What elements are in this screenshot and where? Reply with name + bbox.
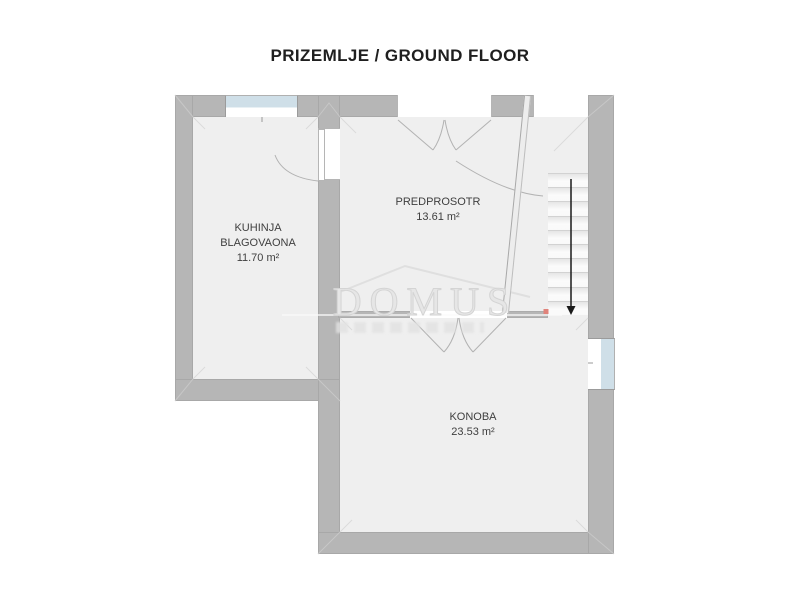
page-title: PRIZEMLJE / GROUND FLOOR: [0, 46, 800, 66]
stair-step: [548, 258, 588, 272]
door-leaf-kitchen: [318, 129, 325, 181]
room-label-konoba: KONOBA 23.53 m²: [408, 410, 538, 440]
watermark: DOMUS: [330, 278, 520, 325]
room-name: BLAGOVAONA: [193, 236, 323, 251]
stair-step: [548, 287, 588, 301]
stair-step: [548, 301, 588, 315]
room-label-kitchen: KUHINJA BLAGOVAONA 11.70 m²: [193, 221, 323, 266]
room-name: KUHINJA: [193, 221, 323, 236]
room-area: 11.70 m²: [193, 251, 323, 266]
room-area: 23.53 m²: [408, 425, 538, 440]
wall-konoba-bottom: [318, 532, 614, 554]
floor-plan-page: { "title": "PRIZEMLJE / GROUND FLOOR", "…: [0, 0, 800, 592]
stair-step: [548, 201, 588, 215]
wall-left: [175, 95, 193, 401]
door-opening-kitchen: [318, 128, 340, 180]
stair-step: [548, 173, 588, 187]
watermark-subtext: [336, 322, 484, 333]
stair-step: [548, 216, 588, 230]
door-opening-entrance: [533, 95, 588, 117]
room-name: PREDPROSOTR: [373, 195, 503, 210]
door-opening-hall-top: [397, 95, 492, 117]
stair-step: [548, 230, 588, 244]
stair-step: [548, 272, 588, 286]
staircase: [548, 173, 588, 315]
window-kitchen: [225, 95, 298, 117]
window-konoba: [588, 338, 615, 390]
stair-step: [548, 187, 588, 201]
wall-right: [588, 95, 614, 554]
room-area: 13.61 m²: [373, 210, 503, 225]
wall-konoba-left: [318, 379, 340, 554]
stair-step: [548, 244, 588, 258]
room-name: KONOBA: [408, 410, 538, 425]
wall-kitchen-bottom: [175, 379, 340, 401]
room-label-hallway: PREDPROSOTR 13.61 m²: [373, 195, 503, 225]
